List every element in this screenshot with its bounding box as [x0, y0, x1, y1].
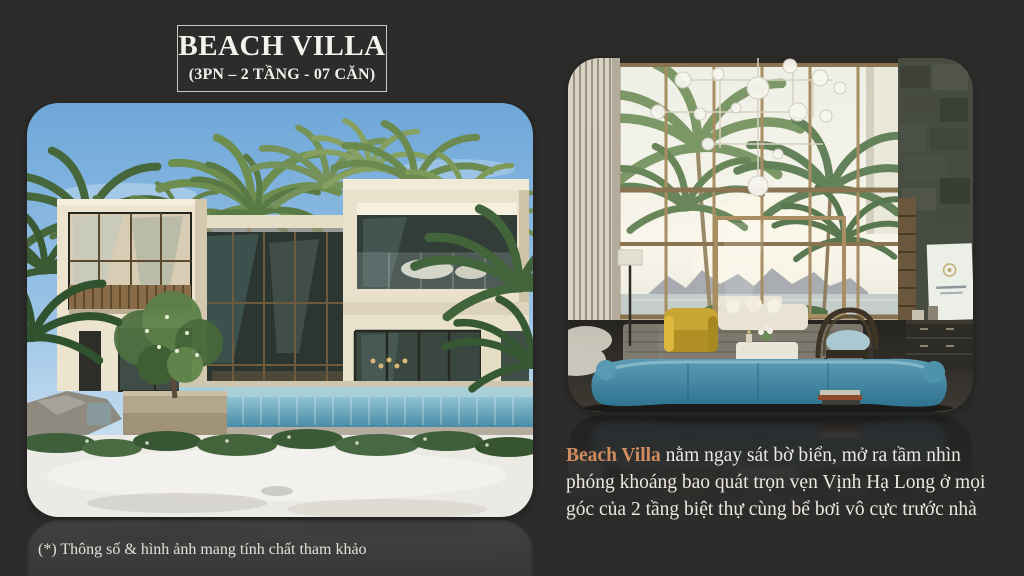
blue-sofa — [583, 359, 953, 412]
floor-books — [818, 390, 862, 405]
exterior-photo — [27, 103, 533, 517]
exterior-photo-frame — [27, 103, 533, 517]
yellow-armchair — [664, 308, 718, 352]
interior-photo-frame — [568, 58, 973, 412]
highlight-text: Beach Villa — [566, 445, 661, 466]
villa-subtitle: (3PN – 2 TẦNG - 07 CĂN) — [178, 63, 386, 87]
slide: BEACH VILLA (3PN – 2 TẦNG - 07 CĂN) — [0, 0, 1024, 576]
left-slat-wall — [568, 58, 620, 320]
exterior-photo-image — [27, 103, 533, 517]
footnote: (*) Thông số & hình ảnh mang tính chất t… — [38, 541, 367, 559]
title-box: BEACH VILLA (3PN – 2 TẦNG - 07 CĂN) — [177, 25, 387, 92]
villa-title: BEACH VILLA — [178, 30, 386, 63]
interior-photo — [568, 58, 973, 412]
description-paragraph: Beach Villa nằm ngay sát bờ biển, mở ra … — [566, 442, 994, 523]
interior-photo-image — [568, 58, 973, 412]
floor-books — [818, 422, 862, 437]
